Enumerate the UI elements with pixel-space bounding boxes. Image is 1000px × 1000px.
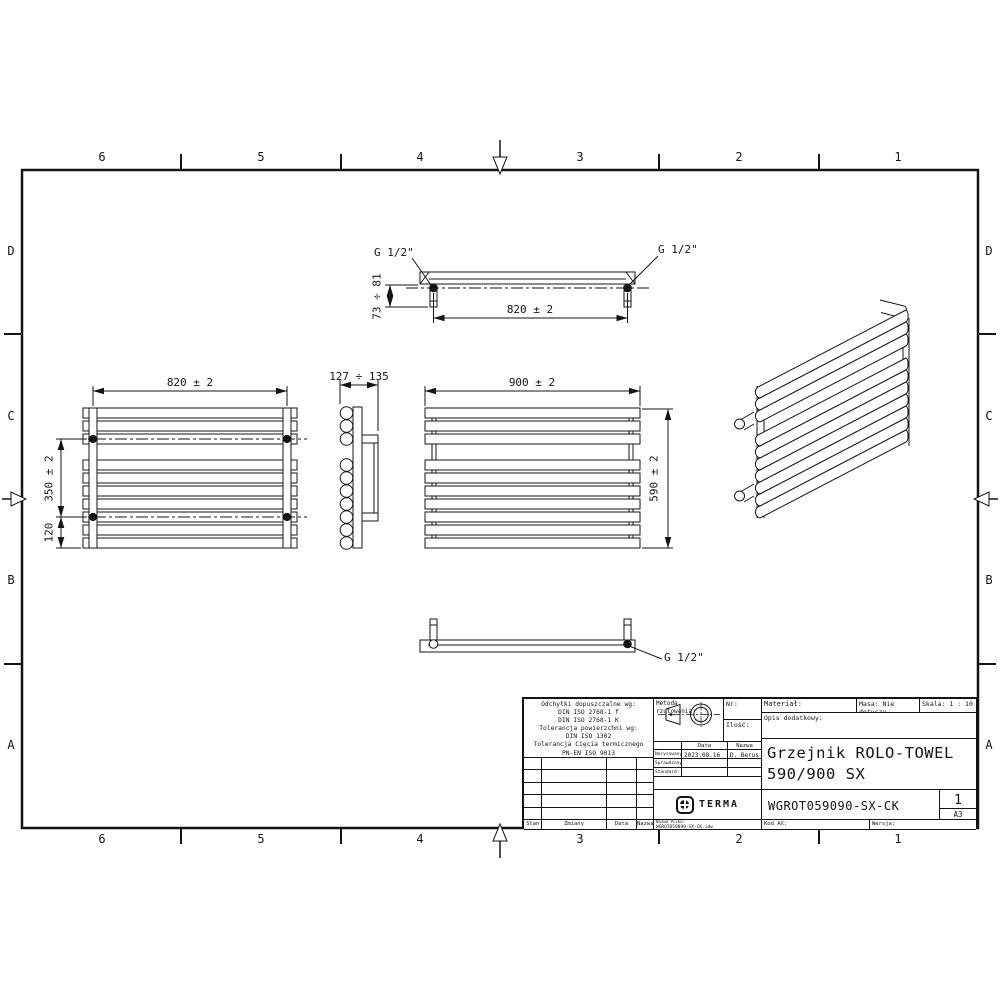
dim-conn-spacing: 350 ± 2	[43, 439, 56, 519]
checked-date	[682, 759, 728, 768]
zone-bottom-2: 2	[719, 832, 759, 846]
zone-left-b: B	[3, 573, 19, 587]
revision-cell	[542, 770, 607, 782]
projection-method-box: Metoda rzutowania:	[654, 699, 724, 742]
view-isometric	[735, 300, 910, 518]
tolerance-line: Tolerancja powierzchni wg:	[524, 725, 653, 733]
description-box: Opis dodatkowy:	[762, 713, 976, 739]
revision-cell	[607, 758, 637, 770]
file-name-box: Nazwa Pliku: WGROT059090-SX-CK.idw	[654, 820, 762, 830]
drawing-sheet: { "border": { "top_labels": ["6","5","4"…	[0, 0, 1000, 1000]
tolerance-line: DIN ISO 1302	[524, 733, 653, 741]
dim-front-height: 590 ± 2	[648, 439, 661, 519]
revision-cell	[542, 795, 607, 807]
thread-label-top-right: G 1/2"	[658, 243, 698, 256]
zone-right-a: A	[981, 738, 997, 752]
product-title-line1: Grzejnik ROLO-TOWEL	[767, 743, 976, 764]
tolerance-line: PN-EN ISO 9013	[524, 750, 653, 758]
zone-bottom-4: 4	[400, 832, 440, 846]
rear-tubes	[83, 408, 297, 548]
terma-logo-icon	[676, 796, 694, 814]
revision-cell	[607, 808, 637, 820]
revision-cell	[637, 808, 654, 820]
zone-bottom-5: 5	[241, 832, 281, 846]
drawn-date: 2023.08.16	[682, 750, 728, 759]
zone-top-1: 1	[878, 150, 918, 164]
nr-box: Nr:	[724, 699, 762, 720]
zone-left-a: A	[3, 738, 19, 752]
dim-side-depth: 127 ÷ 135	[309, 370, 409, 383]
revision-cell	[542, 783, 607, 795]
tolerance-line: DIN ISO 2768-1 f	[524, 709, 653, 717]
title-block: Odchyłki dopuszczalne wg: DIN ISO 2768-1…	[522, 697, 978, 828]
revision-cell	[607, 783, 637, 795]
dim-top-width: 820 ± 2	[480, 303, 580, 316]
revision-cell	[637, 758, 654, 770]
side-tube-ends	[340, 407, 353, 550]
kod-ax-box: Kod AX:	[762, 820, 870, 830]
part-number-box: WGROT059090-SX-CK	[762, 790, 940, 820]
revision-cell	[607, 795, 637, 807]
tolerance-line: DIN ISO 2768-1 K	[524, 717, 653, 725]
drawn-by-label: Narysowany	[654, 750, 682, 759]
brand-box: TERMA	[654, 790, 762, 820]
revision-cell	[607, 770, 637, 782]
zone-right-b: B	[981, 573, 997, 587]
revision-cell	[524, 808, 542, 820]
view-rear	[56, 386, 307, 548]
zone-top-6: 6	[82, 150, 122, 164]
mass-box: Masa: Nie dotyczy	[857, 699, 920, 713]
view-side	[340, 380, 378, 549]
product-title-box: Grzejnik ROLO-TOWEL 590/900 SX	[762, 739, 976, 790]
thread-label-bottom: G 1/2"	[664, 651, 704, 664]
revision-cell	[542, 808, 607, 820]
checked-name	[728, 759, 762, 768]
scale-box: Skala: 1 : 10	[920, 699, 976, 713]
dim-top-depth: 73 ÷ 81	[371, 267, 384, 327]
tolerance-line: Odchyłki dopuszczalne wg:	[524, 701, 653, 709]
iso-connection-stubs	[735, 412, 755, 502]
material-box: Materiał:	[762, 699, 857, 713]
rev-col-nazwa: Nazwa	[637, 820, 654, 830]
dim-bottom-offset: 120	[43, 513, 56, 553]
revision-cell	[524, 770, 542, 782]
zone-left-c: C	[3, 409, 19, 423]
tolerance-note: Odchyłki dopuszczalne wg: DIN ISO 2768-1…	[524, 699, 654, 758]
file-name-value: WGROT059090-SX-CK.idw	[656, 825, 759, 830]
rev-col-zmiany: Zmiany	[542, 820, 607, 830]
revision-cell	[637, 770, 654, 782]
front-tubes	[425, 408, 640, 548]
dim-front-width: 900 ± 2	[482, 376, 582, 389]
paper-size-box: A3	[940, 809, 976, 820]
thread-label-top-left: G 1/2"	[374, 246, 414, 259]
zone-right-c: C	[981, 409, 997, 423]
zone-top-5: 5	[241, 150, 281, 164]
drawing-lineart	[0, 0, 1000, 1000]
sig-header-blank	[654, 742, 682, 750]
standard-date	[682, 768, 728, 777]
sheet-number-box: 1	[940, 790, 976, 809]
zone-bottom-1: 1	[878, 832, 918, 846]
rev-col-data: Data	[607, 820, 637, 830]
brand-name: TERMA	[699, 799, 739, 810]
dim-rear-width: 820 ± 2	[140, 376, 240, 389]
revision-cell	[524, 783, 542, 795]
view-bottom	[420, 619, 662, 659]
zone-right-d: D	[981, 244, 997, 258]
zone-top-2: 2	[719, 150, 759, 164]
zone-left-d: D	[3, 244, 19, 258]
first-angle-projection-icon	[654, 699, 724, 730]
tolerance-line: Tolerancja Cięcia termicznego	[524, 741, 653, 749]
spare-cell	[654, 777, 762, 790]
zone-bottom-6: 6	[82, 832, 122, 846]
sig-header-date: Data	[682, 742, 728, 750]
wersja-box: Wersja:	[870, 820, 976, 830]
standard-name	[728, 768, 762, 777]
zone-top-4: 4	[400, 150, 440, 164]
view-front	[425, 386, 673, 548]
checked-by-label: Sprawdzony	[654, 759, 682, 768]
revision-cell	[637, 795, 654, 807]
standard-label: Standard	[654, 768, 682, 777]
qty-box: Ilość:	[724, 720, 762, 742]
revision-cell	[637, 783, 654, 795]
zone-bottom-3: 3	[560, 832, 600, 846]
revision-cell	[524, 758, 542, 770]
revision-cell	[542, 758, 607, 770]
zone-top-3: 3	[560, 150, 600, 164]
sig-header-name: Nazwa	[728, 742, 762, 750]
rev-col-stan: Stan	[524, 820, 542, 830]
revision-cell	[524, 795, 542, 807]
drawn-name: D. Berus	[728, 750, 762, 759]
product-title-line2: 590/900 SX	[767, 764, 976, 785]
